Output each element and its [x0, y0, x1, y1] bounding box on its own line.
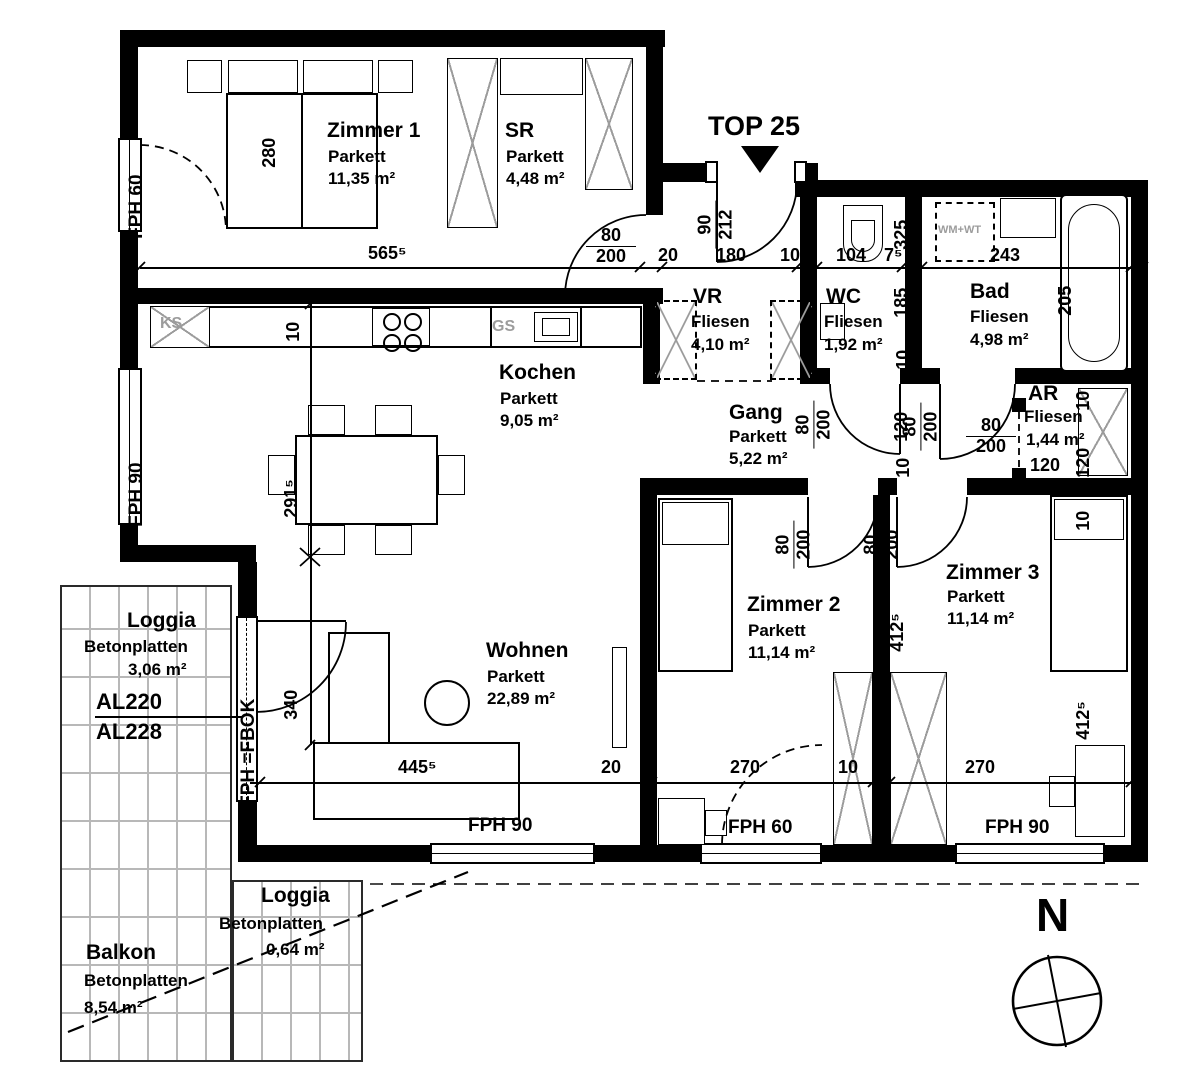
door-arc — [897, 497, 967, 567]
room-floor: Parkett — [506, 148, 564, 167]
room-floor: Betonplatten — [84, 638, 188, 657]
door-size-label: 80200 — [861, 523, 902, 567]
room-area: 22,89 m² — [487, 690, 555, 709]
room-name: Wohnen — [486, 640, 568, 662]
dim-label: 205 — [1056, 286, 1076, 316]
room-name: Zimmer 2 — [747, 594, 840, 616]
dim-label: 120 — [1030, 456, 1060, 476]
room-area: 1,92 m² — [824, 336, 883, 355]
fridge-label: KS — [160, 315, 182, 333]
dim-label: 120 — [1074, 448, 1094, 478]
window-label: FPH 60 — [728, 818, 792, 839]
room-area: 9,05 m² — [500, 412, 559, 431]
dim-label: 10 — [838, 758, 858, 778]
dim-label: 185 — [892, 288, 912, 318]
door-width: 80 — [793, 415, 813, 435]
door-height: 200 — [921, 412, 941, 442]
door-size-label: 80200 — [793, 403, 834, 447]
window-label: FPH =FBOK — [239, 699, 260, 807]
dim-label: 565⁵ — [368, 244, 407, 264]
door-arc — [140, 145, 226, 231]
room-floor: Betonplatten — [84, 972, 188, 991]
dim-label: 20 — [658, 246, 678, 266]
dim-label: 291⁵ — [282, 479, 302, 518]
door-width: 80 — [900, 417, 920, 437]
room-area: 11,14 m² — [748, 644, 815, 663]
dim-break-mark — [300, 548, 320, 566]
room-name: Loggia — [261, 885, 330, 907]
washer-label: WM+WT — [938, 224, 981, 236]
dim-label: 180 — [716, 246, 746, 266]
room-floor: Fliesen — [1024, 408, 1083, 427]
room-floor: Parkett — [748, 622, 806, 641]
floor-plan: Zimmer 1 Parkett 11,35 m² SR Parkett 4,4… — [0, 0, 1200, 1078]
room-name: Bad — [970, 281, 1010, 303]
dim-label: 445⁵ — [398, 758, 437, 778]
room-floor: Betonplatten — [219, 915, 323, 934]
window-label: FPH 90 — [127, 462, 148, 526]
door-height: 200 — [882, 530, 902, 560]
level-label: AL228 — [96, 720, 162, 743]
window-label: FPH 60 — [127, 174, 148, 238]
dim-label: 340 — [282, 690, 302, 720]
room-name: Balkon — [86, 942, 156, 964]
door-height: 200 — [596, 247, 626, 267]
room-area: 0,64 m² — [266, 941, 325, 960]
room-floor: Parkett — [500, 390, 558, 409]
dim-label: 280 — [260, 138, 280, 168]
room-floor: Parkett — [947, 588, 1005, 607]
window-label: FPH 90 — [985, 818, 1049, 839]
room-floor: Parkett — [328, 148, 386, 167]
room-area: 3,06 m² — [128, 661, 187, 680]
door-size-label: 80200 — [588, 226, 634, 267]
dim-label: 10 — [780, 246, 800, 266]
room-floor: Parkett — [729, 428, 787, 447]
dim-label: 10 — [1074, 511, 1094, 531]
door-height: 200 — [794, 530, 814, 560]
dim-label: 270 — [730, 758, 760, 778]
door-width: 80 — [861, 535, 881, 555]
room-area: 4,48 m² — [506, 170, 565, 189]
room-area: 11,14 m² — [947, 610, 1014, 629]
door-arc — [830, 384, 900, 454]
door-size-label: 80200 — [900, 405, 941, 449]
room-name: Gang — [729, 402, 783, 424]
level-label: AL220 — [96, 690, 162, 713]
room-name: AR — [1028, 383, 1058, 405]
door-height: 200 — [814, 410, 834, 440]
room-name: Kochen — [499, 362, 576, 384]
room-name: Loggia — [127, 610, 196, 632]
entrance-size-label: 90212 — [695, 203, 736, 247]
dim-tick — [305, 299, 315, 750]
dim-label: 10 — [1074, 391, 1094, 411]
dim-label: 412⁵ — [1074, 701, 1094, 740]
door-width: 80 — [601, 226, 621, 246]
room-area: 5,22 m² — [729, 450, 788, 469]
dim-label: 10 — [894, 350, 914, 370]
door-width: 80 — [981, 416, 1001, 436]
room-name: VR — [693, 286, 722, 308]
room-name: Zimmer 1 — [327, 120, 420, 142]
dim-label: 412⁵ — [888, 613, 908, 652]
dim-label: 20 — [601, 758, 621, 778]
dim-label: 10 — [894, 458, 914, 478]
room-area: 4,10 m² — [691, 336, 750, 355]
door-size-label: 80200 — [773, 523, 814, 567]
room-floor: Fliesen — [970, 308, 1029, 327]
dim-label: 325 — [892, 220, 912, 250]
entrance-marker-icon — [741, 146, 779, 173]
unit-title: TOP 25 — [708, 112, 800, 142]
room-floor: Fliesen — [691, 313, 750, 332]
room-area: 8,54 m² — [84, 999, 143, 1018]
door-width: 80 — [773, 535, 793, 555]
dishwasher-label: GS — [492, 318, 515, 336]
dim-label: 270 — [965, 758, 995, 778]
door-height: 212 — [716, 210, 736, 240]
dim-label: 10 — [284, 322, 304, 342]
dim-tick — [255, 777, 1136, 787]
room-floor: Parkett — [487, 668, 545, 687]
plan-linework — [0, 0, 1200, 1078]
room-name: SR — [505, 120, 534, 142]
room-floor: Fliesen — [824, 313, 883, 332]
dim-label: 243 — [990, 246, 1020, 266]
north-compass-icon — [1013, 955, 1101, 1047]
room-area: 11,35 m² — [328, 170, 395, 189]
room-area: 4,98 m² — [970, 331, 1029, 350]
dim-label: 104 — [836, 246, 866, 266]
door-width: 90 — [695, 215, 715, 235]
room-name: Zimmer 3 — [946, 562, 1039, 584]
door-height: 200 — [976, 437, 1006, 457]
door-size-label: 80200 — [968, 416, 1014, 457]
window-label: FPH 90 — [468, 816, 532, 837]
room-name: WC — [826, 286, 861, 308]
north-label: N — [1036, 890, 1069, 941]
